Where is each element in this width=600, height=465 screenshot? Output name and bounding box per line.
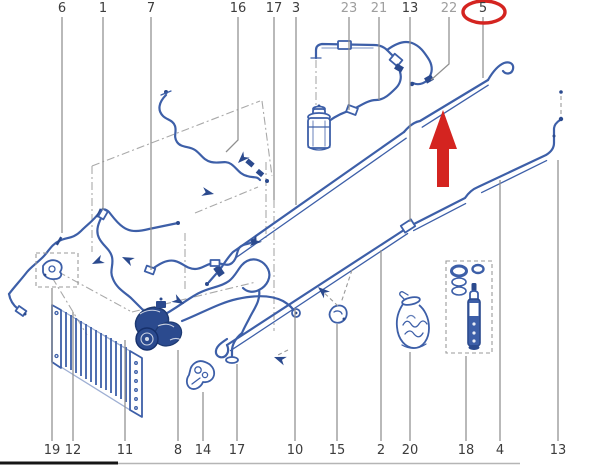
part-label-top-7: 7 — [147, 1, 155, 16]
lower-pipe-bundle — [216, 90, 563, 357]
construction-lines — [44, 60, 316, 335]
part-label-top-22: 22 — [441, 1, 458, 16]
top-hose-assembly — [311, 41, 434, 125]
part-label-bottom-13: 13 — [550, 443, 567, 458]
part-label-top-23: 23 — [341, 1, 358, 16]
part-label-bottom-18: 18 — [458, 443, 475, 458]
part-label-top-1: 1 — [99, 1, 107, 16]
part-label-bottom-2: 2 — [377, 443, 385, 458]
diagram-canvas — [0, 0, 600, 465]
leader-line-top-16 — [226, 17, 238, 152]
part-label-bottom-15: 15 — [329, 443, 346, 458]
part-label-top-21: 21 — [371, 1, 388, 16]
part-label-bottom-14: 14 — [195, 443, 212, 458]
part-label-bottom-11: 11 — [117, 443, 134, 458]
part-label-bottom-10: 10 — [287, 443, 304, 458]
part-label-top-5: 5 — [479, 1, 487, 16]
part-label-bottom-17: 17 — [229, 443, 246, 458]
part-label-top-3: 3 — [292, 1, 300, 16]
receiver-canister — [308, 105, 330, 151]
part-label-bottom-20: 20 — [402, 443, 419, 458]
mounting-bracket — [187, 361, 214, 389]
service-kit — [446, 261, 492, 353]
part-label-bottom-12: 12 — [65, 443, 82, 458]
part-label-top-6: 6 — [58, 1, 66, 16]
part-label-top-17: 17 — [266, 1, 283, 16]
red-arrow-icon — [429, 110, 457, 187]
upper-pipe-bundle — [205, 62, 513, 286]
leader-line-top-22 — [431, 17, 449, 80]
oil-bottle — [397, 292, 429, 349]
pipe-clip-15 — [320, 270, 352, 323]
middle-hoses — [97, 209, 300, 363]
part-label-top-16: 16 — [230, 1, 247, 16]
part-label-bottom-19: 19 — [44, 443, 61, 458]
parts-diagram: 6171617323211322519121181417101522018413 — [0, 0, 600, 465]
part-label-top-13: 13 — [402, 1, 419, 16]
highlight-annotations — [429, 1, 505, 187]
photo-edge-artifact — [0, 463, 520, 464]
part-label-bottom-4: 4 — [496, 443, 504, 458]
part-label-bottom-8: 8 — [174, 443, 182, 458]
assembly-arrows — [90, 151, 330, 365]
condenser — [52, 305, 142, 417]
